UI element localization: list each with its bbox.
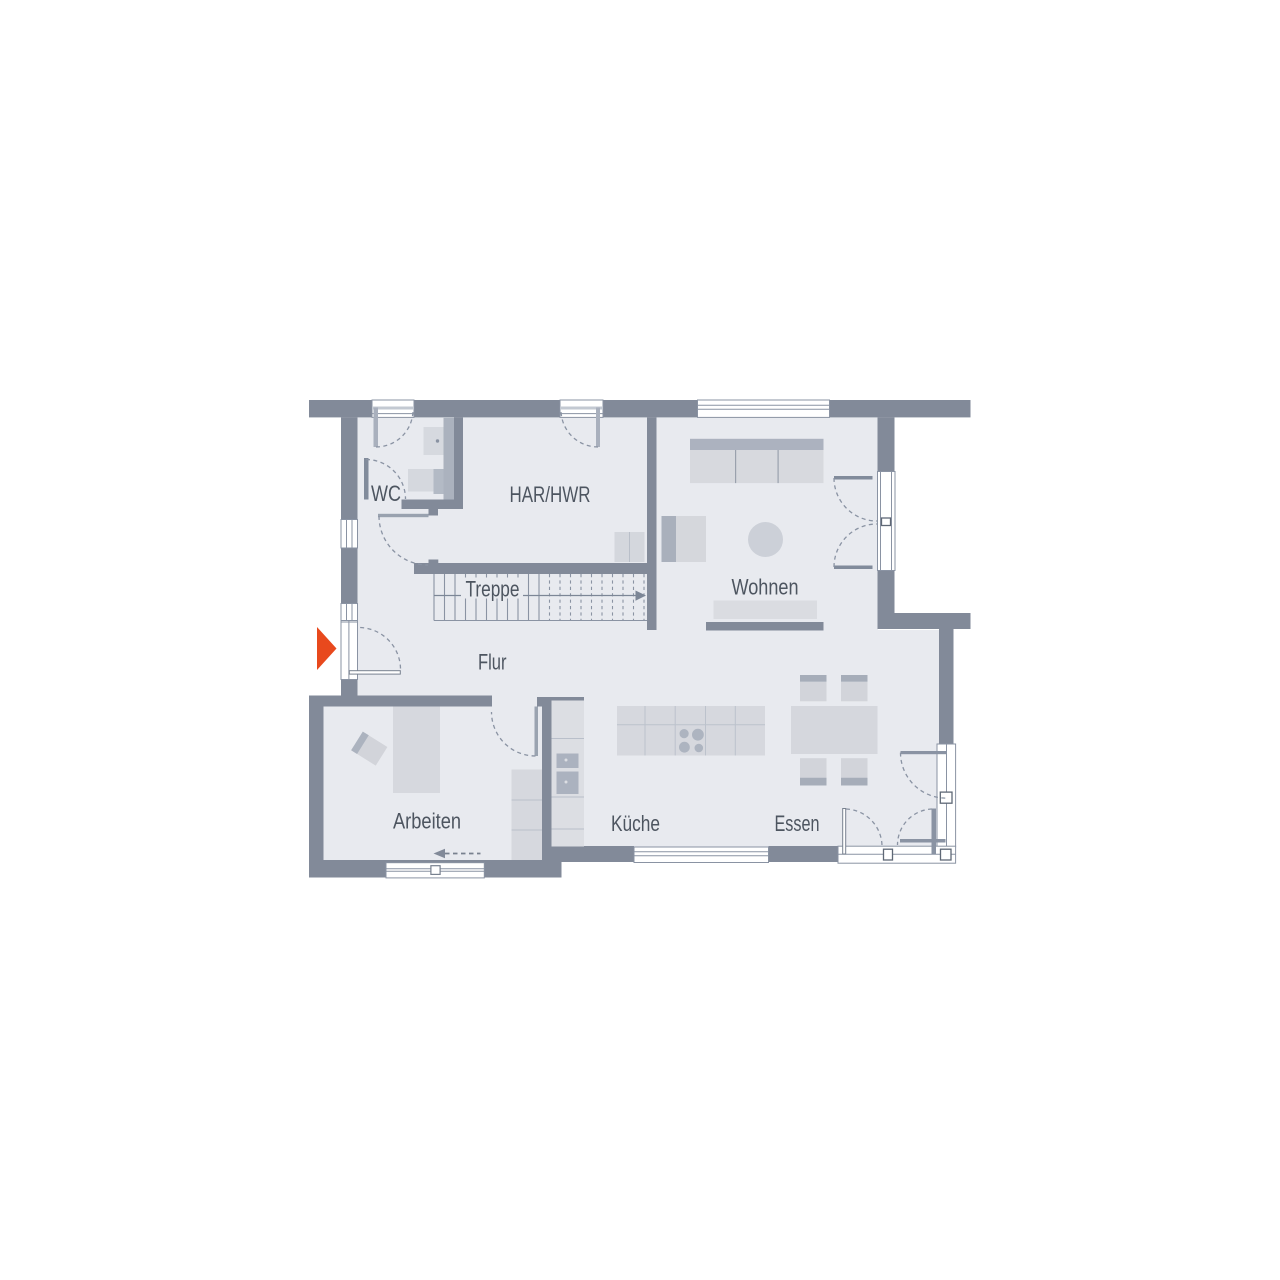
svg-text:Küche: Küche	[611, 811, 660, 836]
svg-text:WC: WC	[371, 481, 401, 506]
svg-text:Flur: Flur	[478, 650, 507, 675]
svg-text:Treppe: Treppe	[466, 577, 520, 602]
svg-text:Arbeiten: Arbeiten	[393, 809, 461, 834]
svg-text:HAR/HWR: HAR/HWR	[510, 482, 591, 507]
svg-text:Wohnen: Wohnen	[732, 575, 799, 600]
svg-text:Essen: Essen	[775, 811, 820, 836]
